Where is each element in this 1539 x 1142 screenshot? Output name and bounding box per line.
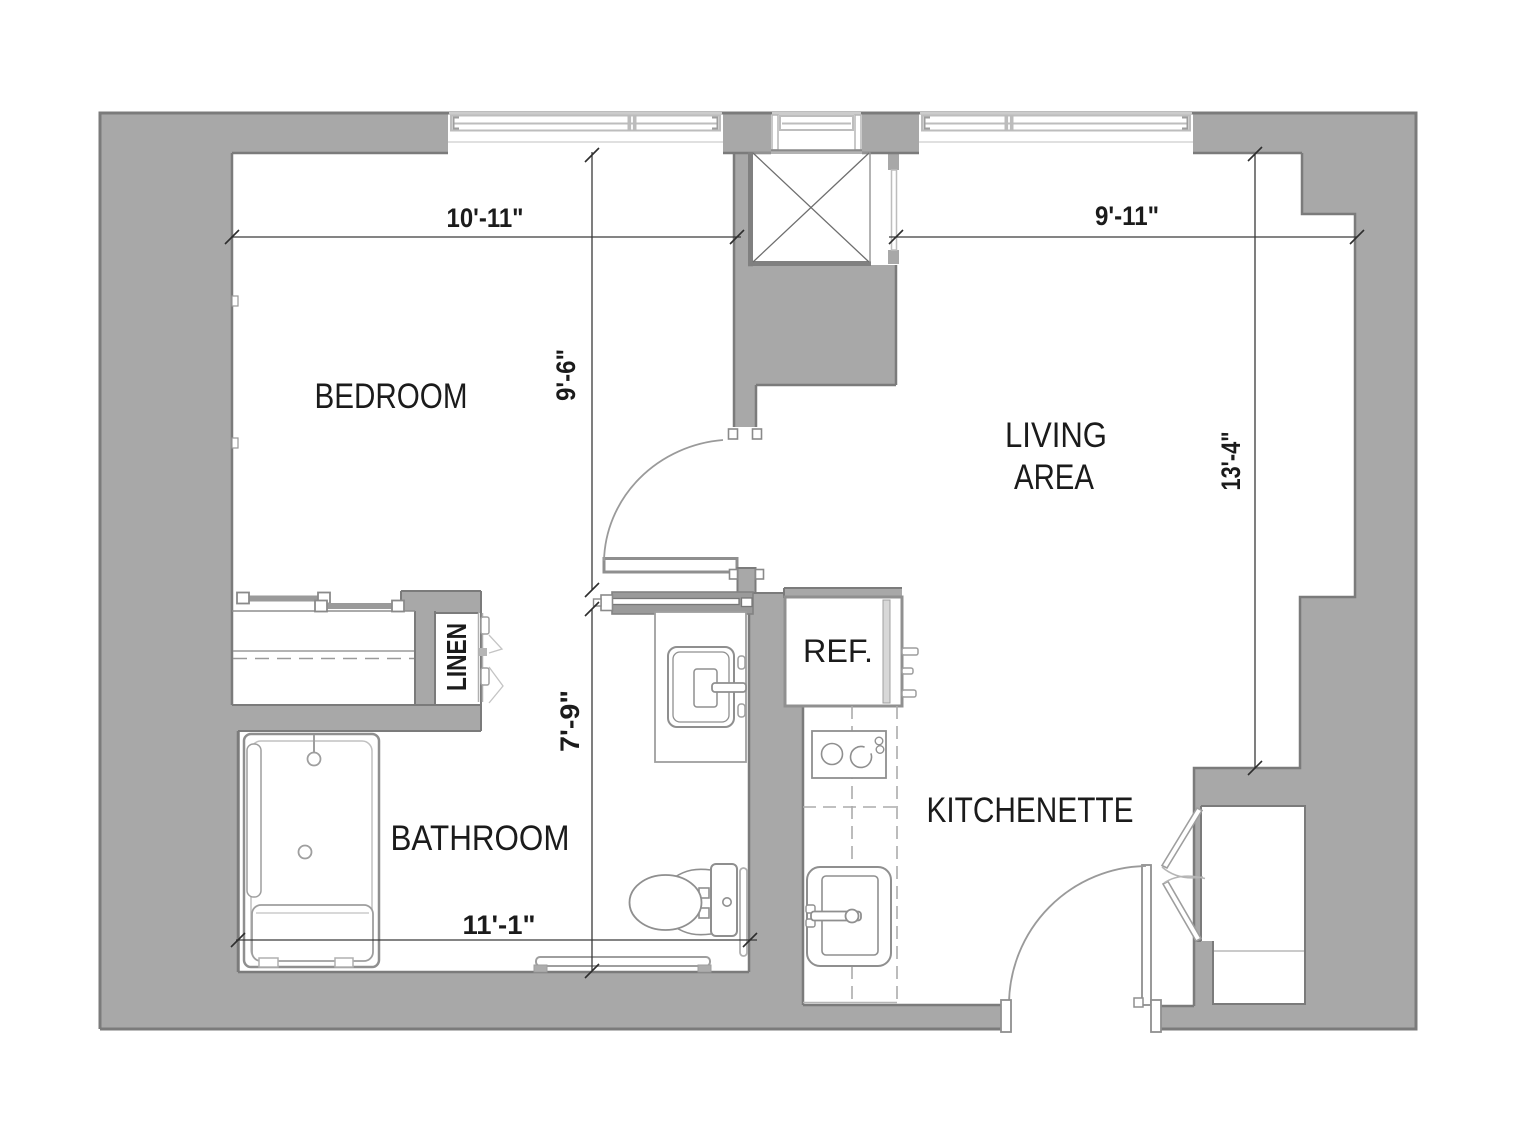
svg-text:9'-6": 9'-6" — [551, 349, 581, 401]
svg-text:KITCHENETTE: KITCHENETTE — [927, 791, 1134, 830]
svg-text:7'-9": 7'-9" — [555, 690, 585, 752]
svg-text:LINEN: LINEN — [441, 623, 472, 691]
svg-text:11'-1": 11'-1" — [463, 910, 536, 940]
svg-text:9'-11": 9'-11" — [1095, 201, 1159, 231]
svg-text:13'-4": 13'-4" — [1216, 432, 1246, 491]
svg-text:LIVING: LIVING — [1005, 416, 1107, 455]
svg-text:REF.: REF. — [803, 633, 873, 669]
svg-text:10'-11": 10'-11" — [447, 203, 524, 233]
svg-text:BATHROOM: BATHROOM — [391, 819, 570, 858]
svg-text:BEDROOM: BEDROOM — [315, 377, 468, 416]
svg-text:AREA: AREA — [1014, 458, 1095, 497]
